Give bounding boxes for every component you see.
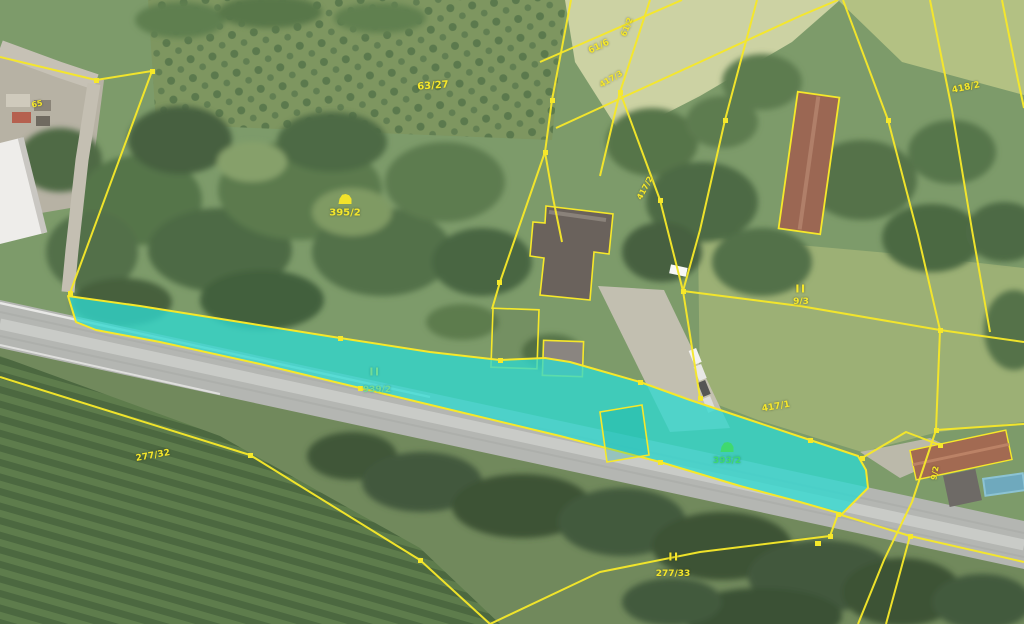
farm-building-gray — [943, 469, 982, 507]
map-viewport[interactable]: 6563/2761/661/2417/3417/2418/2395/2II9/3… — [0, 0, 1024, 624]
aerial-basemap[interactable] — [0, 0, 1024, 624]
inner-building-parcel — [600, 405, 649, 462]
